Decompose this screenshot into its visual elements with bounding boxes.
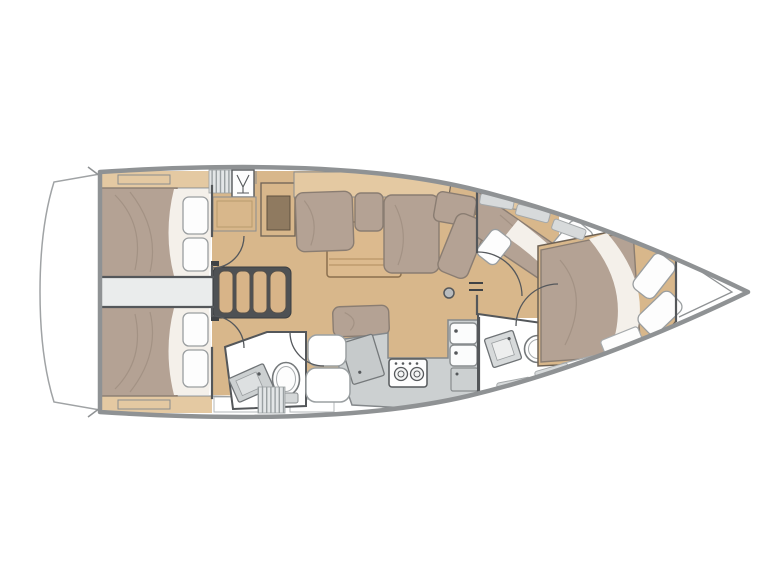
interior: [101, 170, 732, 417]
engine-corridor: [101, 277, 213, 307]
sink-cabinet: [451, 368, 478, 391]
galley-sink: [450, 323, 478, 391]
mast-post: [444, 288, 454, 298]
double-bed: [101, 307, 177, 396]
aft-cabin-starboard: [101, 307, 212, 413]
sink-basin: [450, 345, 477, 366]
aft-cabin-port: [101, 171, 212, 277]
cabinet: [213, 197, 256, 231]
stove: [389, 359, 427, 387]
step: [253, 271, 267, 313]
swim-platform: [40, 174, 100, 410]
step: [236, 271, 250, 313]
shower-seat: [308, 335, 346, 366]
floor-grating: [258, 387, 285, 413]
burner: [411, 368, 424, 381]
nav-desk: [261, 183, 295, 236]
sofa-cushion: [384, 195, 439, 273]
step: [219, 271, 233, 313]
vent-hatch-icon: [232, 170, 254, 197]
pillow: [183, 197, 208, 234]
bench-seat: [332, 305, 389, 337]
companionway-steps: [211, 261, 291, 321]
chaise-lounge: [295, 191, 354, 252]
floor-plan-svg: Sailing yacht interior layout floor plan…: [0, 0, 768, 576]
step: [270, 271, 286, 313]
shower-seat: [306, 368, 350, 402]
sofa-cushion: [355, 193, 383, 231]
pillow: [183, 238, 208, 271]
pillow: [183, 350, 208, 387]
pillow: [183, 313, 208, 346]
double-bed: [101, 188, 177, 277]
burner: [395, 368, 408, 381]
yacht-floor-plan: Sailing yacht interior layout floor plan…: [0, 0, 768, 576]
sink-basin: [450, 323, 477, 344]
